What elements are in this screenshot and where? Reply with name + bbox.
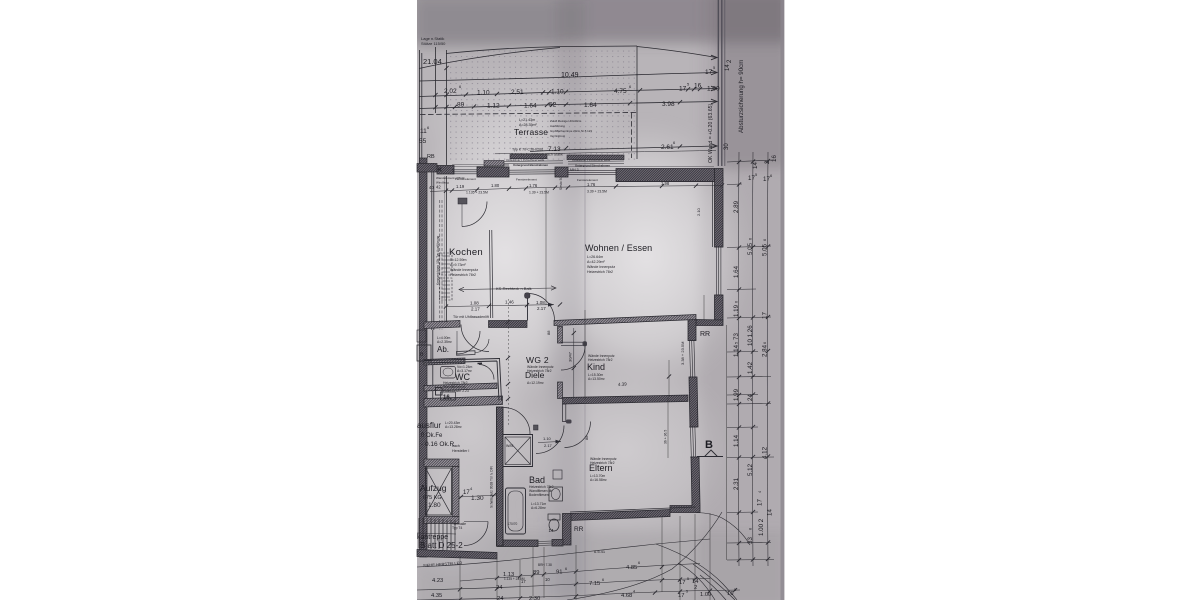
svg-text:1.10: 1.10: [477, 90, 490, 97]
svg-text:6: 6: [749, 238, 753, 240]
svg-text:A=13.50m²: A=13.50m²: [588, 377, 606, 381]
svg-text:4.39: 4.39: [618, 382, 628, 387]
svg-text:1.64: 1.64: [524, 103, 537, 110]
svg-text:24: 24: [747, 394, 754, 401]
svg-text:170/70: 170/70: [508, 522, 518, 526]
svg-text:Bad: Bad: [529, 475, 545, 485]
svg-text:2.17: 2.17: [544, 443, 553, 448]
svg-text:A=3.17m²: A=3.17m²: [457, 369, 473, 373]
svg-text:10 1.26: 10 1.26: [747, 325, 754, 346]
svg-text:89: 89: [457, 102, 465, 109]
svg-text:1.80: 1.80: [428, 502, 441, 509]
svg-text:Fensterelement: Fensterelement: [577, 178, 598, 182]
svg-text:1.00: 1.00: [700, 592, 711, 598]
svg-text:88: 88: [584, 435, 589, 440]
svg-text:1.10: 1.10: [551, 89, 564, 96]
svg-text:6: 6: [602, 578, 604, 582]
svg-text:A=2.35m²: A=2.35m²: [437, 340, 453, 344]
svg-text:Kochen: Kochen: [449, 247, 483, 258]
svg-text:3.38 + 23.5M: 3.38 + 23.5M: [680, 342, 685, 365]
svg-text:88: 88: [546, 330, 551, 335]
svg-text:A=28.35m²: A=28.35m²: [519, 123, 537, 127]
svg-text:1.19: 1.19: [733, 304, 740, 317]
svg-text:14: 14: [767, 509, 774, 516]
svg-text:A=13.28m²: A=13.28m²: [445, 425, 463, 429]
svg-text:Ab.: Ab.: [437, 345, 449, 354]
svg-text:Kind: Kind: [587, 362, 605, 372]
svg-text:4: 4: [633, 590, 635, 594]
svg-text:42: 42: [436, 185, 441, 190]
svg-text:Kennzeichnen 10k.Typ Ausführun: Kennzeichnen 10k.Typ Ausführung: [436, 236, 440, 285]
svg-text:1.98: 1.98: [661, 181, 670, 186]
svg-text:55: 55: [419, 138, 427, 145]
svg-text:Zuluft Reiniger 40x40cm: Zuluft Reiniger 40x40cm: [550, 119, 582, 123]
svg-text:1.64: 1.64: [733, 265, 740, 278]
svg-text:1.80: 1.80: [491, 183, 500, 188]
svg-text:36 + 36.5: 36 + 36.5: [664, 430, 668, 444]
svg-text:Heizestrich 78r2: Heizestrich 78r2: [450, 273, 476, 277]
svg-text:40: 40: [429, 185, 434, 190]
svg-text:5: 5: [686, 590, 688, 594]
svg-text:2.10: 2.10: [696, 207, 701, 216]
svg-text:A=16.58m²: A=16.58m²: [590, 478, 608, 482]
svg-text:A=6.28m²: A=6.28m²: [531, 506, 547, 510]
svg-text:BRH 7.38: BRH 7.38: [538, 563, 552, 567]
svg-text:17: 17: [679, 86, 687, 93]
svg-text:2.02: 2.02: [444, 88, 457, 95]
svg-text:2.89: 2.89: [733, 200, 740, 213]
svg-text:Tür mit Uhlfassadenlift: Tür mit Uhlfassadenlift: [453, 315, 489, 319]
svg-text:1.14: 1.14: [733, 434, 740, 447]
svg-text:kontreppe: kontreppe: [417, 534, 448, 541]
svg-text:nach: nach: [452, 444, 460, 448]
svg-text:Aufzug: Aufzug: [420, 483, 447, 493]
svg-text:ausflur: ausflur: [417, 421, 441, 430]
svg-text:4.75: 4.75: [614, 88, 627, 95]
svg-text:17: 17: [678, 593, 684, 599]
svg-text:5: 5: [687, 577, 689, 581]
svg-text:B=12.59m: B=12.59m: [450, 258, 466, 262]
svg-text:MH 3: MH 3: [570, 168, 579, 172]
svg-text:W/M: W/M: [506, 444, 513, 448]
svg-text:6: 6: [735, 301, 739, 303]
svg-text:Wohnen / Essen: Wohnen / Essen: [585, 243, 652, 253]
svg-text:1.08: 1.08: [470, 301, 479, 306]
svg-text:5.05: 5.05: [747, 242, 754, 255]
svg-text:675 KG: 675 KG: [423, 495, 442, 501]
svg-text:A=42.29m²: A=42.29m²: [587, 260, 605, 264]
svg-text:4.12: 4.12: [762, 446, 769, 459]
svg-text:Sesto 50: Sesto 50: [559, 177, 563, 190]
svg-text:Untergrund Blendrahmen: Untergrund Blendrahmen: [513, 163, 548, 167]
svg-text:6: 6: [763, 342, 767, 344]
svg-text:Wände Innenputz: Wände Innenputz: [450, 268, 478, 272]
svg-text:Füllerfliesen 2.23: Füllerfliesen 2.23: [443, 389, 469, 393]
svg-text:2.61: 2.61: [661, 144, 674, 151]
svg-text:4: 4: [758, 491, 762, 493]
svg-text:91: 91: [556, 570, 562, 576]
svg-text:1.76: 1.76: [529, 183, 538, 188]
svg-text:Typ K 70-C36-h200: Typ K 70-C36-h200: [512, 148, 543, 152]
svg-text:1.10: 1.10: [543, 436, 552, 441]
svg-text:1.42: 1.42: [747, 361, 754, 374]
svg-text:Schallschutz 30dB Tür n. DIN: Schallschutz 30dB Tür n. DIN: [490, 466, 494, 508]
svg-text:33: 33: [747, 537, 754, 544]
svg-text:1.46: 1.46: [505, 300, 514, 305]
svg-text:RB: RB: [427, 154, 435, 160]
svg-text:14: 14: [549, 528, 555, 533]
svg-text:- 0.16 Ok.R: - 0.16 Ok.R: [421, 441, 455, 448]
svg-text:Wände Innenputz: Wände Innenputz: [587, 265, 615, 269]
svg-text:30/47: 30/47: [568, 351, 573, 362]
svg-text:24: 24: [497, 596, 504, 600]
svg-text:KS-Rechteck n.Balk: KS-Rechteck n.Balk: [496, 286, 532, 291]
svg-text:5: 5: [735, 342, 739, 344]
svg-text:A=9.73m²: A=9.73m²: [450, 263, 466, 267]
svg-text:17: 17: [762, 312, 769, 319]
svg-text:Großflächenrinne 20cm Nr.5 12: Großflächenrinne 20cm Nr.5 123: [550, 129, 592, 133]
svg-text:1.00: 1.00: [707, 86, 720, 93]
svg-text:Fensterelement: Fensterelement: [516, 178, 537, 182]
svg-text:2.17: 2.17: [471, 307, 480, 312]
svg-text:3.98: 3.98: [662, 101, 675, 108]
svg-text:17: 17: [705, 69, 713, 76]
svg-text:Verzinktrost: Verzinktrost: [550, 134, 565, 138]
svg-text:Bodenfliesen: Bodenfliesen: [529, 493, 549, 497]
svg-text:30: 30: [724, 143, 730, 150]
svg-text:2: 2: [764, 160, 771, 164]
svg-text:K: K: [438, 168, 442, 174]
svg-text:4.23: 4.23: [432, 578, 443, 584]
svg-text:Ausführung: Ausführung: [550, 124, 565, 128]
svg-text:Heizestrich 78r2: Heizestrich 78r2: [587, 270, 613, 274]
svg-text:14: 14: [725, 64, 731, 71]
svg-text:10.49: 10.49: [561, 72, 579, 79]
svg-text:1.76: 1.76: [587, 182, 596, 187]
svg-text:2.31: 2.31: [733, 477, 740, 490]
svg-text:0 Ok.Fe: 0 Ok.Fe: [421, 433, 443, 439]
svg-text:17: 17: [521, 579, 526, 584]
svg-text:2.84: 2.84: [762, 344, 769, 357]
svg-text:73: 73: [733, 333, 740, 340]
svg-text:2.17: 2.17: [537, 306, 546, 311]
svg-text:L=26.64m: L=26.64m: [587, 255, 603, 259]
svg-text:Umlaufende n.Putzschiene wei: Umlaufende n.Putzschiene weiss: [506, 158, 545, 162]
svg-text:21.04: 21.04: [423, 57, 442, 66]
svg-text:17: 17: [757, 499, 764, 506]
svg-text:5.12: 5.12: [747, 463, 754, 476]
svg-text:L=21.43m: L=21.43m: [519, 118, 535, 122]
svg-text:Fensterelement: Fensterelement: [455, 177, 476, 181]
svg-text:10: 10: [545, 577, 550, 582]
svg-text:1.64: 1.64: [584, 102, 597, 109]
svg-text:4.68: 4.68: [621, 593, 632, 599]
svg-text:6.5.41: 6.5.41: [594, 549, 606, 554]
svg-text:2.51: 2.51: [511, 89, 524, 96]
svg-text:6: 6: [565, 567, 567, 571]
svg-text:89: 89: [533, 570, 539, 576]
svg-text:7.15: 7.15: [589, 581, 600, 587]
svg-text:6: 6: [638, 561, 640, 565]
svg-text:1.00 2: 1.00 2: [758, 518, 765, 536]
svg-text:Heizestrich 78r2: Heizestrich 78r2: [588, 358, 613, 362]
svg-text:1.99: 1.99: [733, 388, 740, 401]
svg-text:1.14: 1.14: [733, 344, 740, 357]
svg-text:Diele: Diele: [525, 370, 545, 380]
svg-text:Absturzsicherung h= 90cm: Absturzsicherung h= 90cm: [738, 60, 745, 133]
svg-text:1.12: 1.12: [487, 103, 500, 110]
svg-text:14: 14: [752, 162, 759, 169]
svg-text:Heizestrich 78r2: Heizestrich 78r2: [590, 461, 615, 465]
svg-text:5.05: 5.05: [762, 243, 769, 256]
svg-text:2.30: 2.30: [529, 596, 540, 600]
svg-text:WG 2: WG 2: [526, 355, 549, 365]
svg-text:1.19: 1.19: [456, 184, 465, 189]
svg-text:A=12.19m²: A=12.19m²: [527, 381, 545, 385]
svg-text:4.35: 4.35: [431, 593, 442, 599]
svg-text:Hersteller I: Hersteller I: [452, 449, 469, 453]
svg-text:B: B: [705, 439, 713, 451]
svg-text:5: 5: [734, 588, 736, 592]
svg-text:16: 16: [694, 83, 702, 90]
svg-text:6: 6: [763, 239, 767, 241]
svg-text:Typ T4: Typ T4: [452, 526, 462, 530]
svg-text:Stütze 115/50: Stütze 115/50: [421, 41, 446, 46]
svg-text:3.39 + 23.5M: 3.39 + 23.5M: [587, 190, 607, 194]
svg-text:Umlaufende n.Putzschiene wei: Umlaufende n.Putzschiene weiss: [572, 158, 611, 162]
svg-text:4.85: 4.85: [626, 565, 637, 571]
svg-text:52: 52: [549, 102, 557, 109]
svg-text:8: 8: [749, 528, 753, 530]
svg-text:2: 2: [694, 585, 697, 591]
svg-text:B att D 25-2: B att D 25-2: [420, 541, 463, 550]
svg-text:RR: RR: [574, 526, 584, 533]
svg-text:16.: 16.: [443, 395, 452, 401]
svg-text:RR: RR: [700, 331, 710, 338]
svg-text:Terrasse: Terrasse: [514, 127, 548, 137]
svg-text:Untergrund Blendrahmen: Untergrund Blendrahmen: [575, 164, 610, 168]
svg-text:OK Wand = +0.20 (63.65): OK Wand = +0.20 (63.65): [708, 104, 714, 163]
svg-text:16: 16: [771, 155, 778, 162]
svg-text:1.08: 1.08: [536, 300, 545, 305]
svg-text:1.135 + 23.5M: 1.135 + 23.5M: [466, 191, 488, 195]
